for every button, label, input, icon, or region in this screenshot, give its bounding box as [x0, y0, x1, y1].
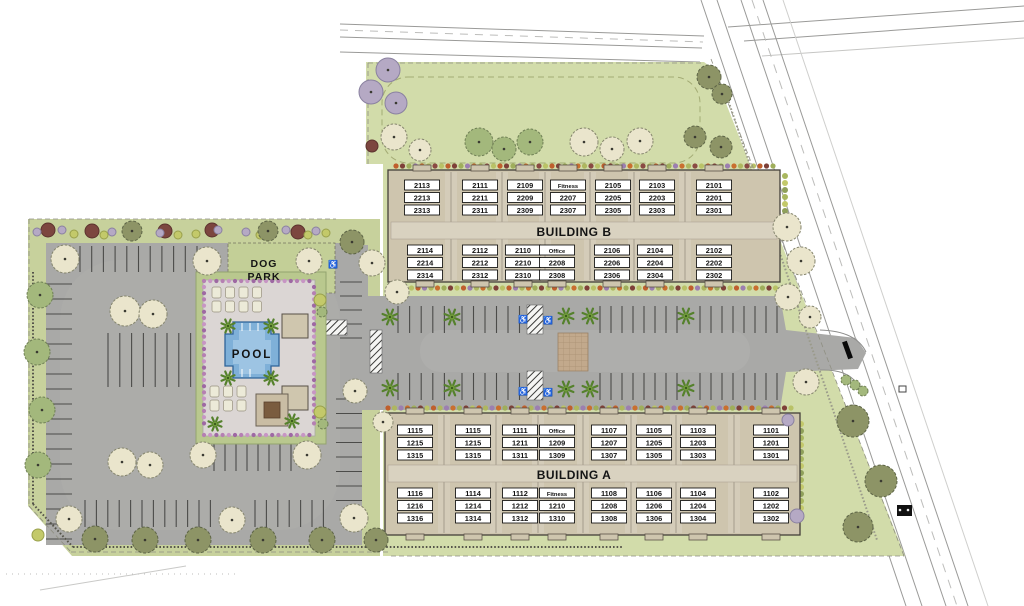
unit-number: 1310 [549, 514, 565, 523]
tree-center-dot [800, 260, 803, 263]
planting-dot [756, 405, 761, 410]
unit-number: 2210 [515, 258, 531, 267]
planting-dot [398, 405, 403, 410]
tree-center-dot [786, 226, 789, 229]
planting-dot [591, 285, 596, 290]
unit-number: 2109 [517, 181, 533, 190]
tree-center-dot [382, 421, 385, 424]
tree-center-dot [262, 539, 265, 542]
porch [705, 165, 723, 171]
planting-dot [202, 285, 206, 289]
tree-center-dot [393, 136, 396, 139]
tree-icon [33, 228, 41, 236]
porch [548, 281, 566, 287]
planting-dot [406, 163, 411, 168]
planting-dot [227, 433, 231, 437]
planting-dot [208, 279, 212, 283]
building-name-label: BUILDING B [537, 225, 612, 239]
plan-line [340, 30, 703, 42]
palm-dot [451, 316, 453, 318]
unit-label-column: 210922092309 [508, 180, 543, 215]
unit-label-column: 211222122312 [463, 245, 498, 280]
unit-number: 2208 [549, 258, 565, 267]
planting-dot [393, 163, 398, 168]
planting-dot [270, 433, 274, 437]
planting-dot [258, 433, 262, 437]
unit-number: 1304 [690, 514, 707, 523]
unit-number: 1115 [465, 426, 481, 435]
unit-number: 2302 [706, 271, 722, 280]
unit-label-column: 110512051305 [637, 425, 672, 460]
unit-label-column: 210122012301 [697, 180, 732, 215]
unit-number: 2204 [647, 258, 664, 267]
tree-center-dot [371, 262, 374, 265]
planting-dot [567, 405, 572, 410]
planting-dot [753, 285, 758, 290]
planting-dot [301, 279, 305, 283]
planting-dot [202, 421, 206, 425]
unit-label-column: 110812081308 [592, 488, 627, 523]
unit-number: 1211 [512, 438, 528, 447]
planting-dot [202, 347, 206, 351]
unit-number: 2209 [517, 193, 533, 202]
planting-dot [400, 163, 405, 168]
planting-dot [227, 279, 231, 283]
planting-dot [307, 433, 311, 437]
lounge-chair [237, 386, 246, 397]
accessible-parking-icon: ♿ [518, 386, 528, 396]
unit-number: 1210 [549, 501, 565, 510]
unit-number: 1303 [690, 451, 706, 460]
tree-icon [312, 227, 320, 235]
planting-dot [312, 359, 316, 363]
planting-dot [450, 405, 455, 410]
tree-center-dot [880, 480, 883, 483]
plan-line [40, 566, 186, 590]
planting-dot [312, 397, 316, 401]
unit-number: 1302 [763, 514, 779, 523]
accessible-parking-icon: ♿ [543, 315, 553, 325]
planting-dot [312, 310, 316, 314]
unit-number: 1306 [646, 514, 662, 523]
unit-label-column: 210422042304 [638, 245, 673, 280]
unit-number: 2307 [560, 206, 576, 215]
porch [548, 534, 566, 540]
unit-number: 1208 [601, 501, 617, 510]
unit-number: 1102 [763, 489, 779, 498]
porch [648, 165, 666, 171]
porch [464, 408, 482, 414]
unit-number: 2213 [414, 193, 430, 202]
planting-dot [289, 279, 293, 283]
planting-dot [202, 415, 206, 419]
planting-dot [202, 397, 206, 401]
unit-number: 1112 [512, 489, 528, 498]
planting-dot [312, 328, 316, 332]
planting-dot [312, 390, 316, 394]
planting-dot [461, 285, 466, 290]
planting-dot [312, 335, 316, 339]
tree-icon [32, 529, 44, 541]
unit-number: 1214 [465, 501, 482, 510]
palm-dot [589, 315, 591, 317]
unit-number: 1316 [407, 514, 423, 523]
unit-number: 1314 [465, 514, 482, 523]
unit-label-column: 110112011301 [754, 425, 789, 460]
planting-dot [202, 310, 206, 314]
unit-number: 2310 [515, 271, 531, 280]
unit-number: 2111 [472, 181, 488, 190]
accessible-parking-icon: ♿ [518, 314, 528, 324]
tree-icon [858, 386, 868, 396]
planting-dot [233, 433, 237, 437]
planting-dot [454, 285, 459, 290]
tree-center-dot [375, 539, 378, 542]
planting-dot [312, 341, 316, 345]
planting-dot [623, 285, 628, 290]
unit-number: 1315 [465, 451, 481, 460]
tree-icon [790, 509, 804, 523]
planting-dot [202, 359, 206, 363]
planting-dot [692, 163, 697, 168]
plan-line [744, 21, 1024, 41]
planting-dot [301, 433, 305, 437]
planting-dot [699, 163, 704, 168]
plan-rect [558, 333, 588, 371]
planting-dot [757, 163, 762, 168]
planting-dot [593, 405, 598, 410]
planting-dot [202, 384, 206, 388]
planting-dot [312, 285, 316, 289]
planting-dot [597, 285, 602, 290]
unit-number: Office [549, 249, 566, 255]
unit-number: 2305 [605, 206, 621, 215]
planting-dot [632, 405, 637, 410]
unit-label-column: 111512151315 [398, 425, 433, 460]
planting-dot [541, 405, 546, 410]
planting-dot [312, 353, 316, 357]
lounge-chair [239, 301, 248, 312]
tree-icon [192, 230, 200, 238]
porch [559, 165, 577, 171]
tree-center-dot [583, 141, 586, 144]
planting-dot [506, 285, 511, 290]
planting-dot [695, 285, 700, 290]
tree-icon [322, 229, 330, 237]
planting-dot [619, 405, 624, 410]
porch [514, 281, 532, 287]
unit-number: 2205 [605, 193, 621, 202]
planting-dot [497, 163, 502, 168]
planting-dot [493, 285, 498, 290]
tree-center-dot [206, 260, 209, 263]
tree-center-dot [857, 526, 860, 529]
planting-dot [747, 285, 752, 290]
planting-dot [202, 409, 206, 413]
tree-icon [242, 228, 250, 236]
planting-dot [432, 163, 437, 168]
tree-center-dot [529, 141, 532, 144]
planting-dot [312, 372, 316, 376]
planting-dot [295, 279, 299, 283]
tree-center-dot [503, 148, 506, 151]
planting-dot [458, 163, 463, 168]
planting-dot [627, 163, 632, 168]
planting-dot [588, 163, 593, 168]
unit-number: 2311 [472, 206, 488, 215]
unit-number: 2104 [647, 246, 664, 255]
planting-dot [312, 366, 316, 370]
unit-number: 1311 [512, 451, 528, 460]
lounge-chair [253, 301, 262, 312]
planting-dot [457, 405, 462, 410]
porch [762, 408, 780, 414]
tree-center-dot [306, 454, 309, 457]
tree-icon [314, 406, 326, 418]
tree-center-dot [419, 149, 422, 152]
planting-dot [202, 372, 206, 376]
planting-dot [312, 291, 316, 295]
porch [406, 534, 424, 540]
planting-dot [782, 194, 788, 200]
tree-icon [366, 140, 378, 152]
building-b: BUILDING B211322132313211122112311210922… [388, 165, 780, 287]
planting-dot [202, 304, 206, 308]
unit-number: 2101 [706, 181, 722, 190]
planting-dot [671, 405, 676, 410]
planting-dot [675, 285, 680, 290]
unit-number: 1308 [601, 514, 617, 523]
unit-number: 2301 [706, 206, 722, 215]
unit-number: 1106 [646, 489, 662, 498]
planting-dot [727, 285, 732, 290]
porch [516, 165, 534, 171]
planting-dot [202, 403, 206, 407]
tree-icon [282, 226, 290, 234]
planting-dot [580, 405, 585, 410]
unit-number: 1205 [646, 438, 662, 447]
porch [705, 281, 723, 287]
unit-label-column: 210322032303 [640, 180, 675, 215]
unit-number: 2309 [517, 206, 533, 215]
building-name-label: BUILDING A [537, 468, 612, 482]
planting-dot [202, 279, 206, 283]
unit-number: 1101 [763, 426, 779, 435]
tree-center-dot [787, 296, 790, 299]
planting-dot [626, 405, 631, 410]
planting-dot [289, 433, 293, 437]
plan-rect [264, 402, 280, 418]
planting-dot [574, 405, 579, 410]
porch [645, 408, 663, 414]
unit-number: 1104 [690, 489, 707, 498]
unit-number: 2202 [706, 258, 722, 267]
planting-dot [312, 322, 316, 326]
porch [762, 534, 780, 540]
tree-center-dot [36, 351, 39, 354]
palm-dot [685, 315, 687, 317]
planting-dot [740, 285, 745, 290]
unit-number: 2313 [414, 206, 430, 215]
planting-dot [734, 285, 739, 290]
planting-dot [630, 285, 635, 290]
planting-dot [202, 353, 206, 357]
planting-dot [899, 509, 902, 512]
unit-number: 1301 [763, 451, 779, 460]
planting-dot [639, 405, 644, 410]
planting-dot [202, 316, 206, 320]
planting-dot [736, 405, 741, 410]
porch [689, 534, 707, 540]
planting-dot [679, 163, 684, 168]
tree-icon [41, 223, 55, 237]
planting-dot [202, 322, 206, 326]
unit-number: Office [549, 429, 566, 435]
accessible-parking-icon: ♿ [543, 387, 553, 397]
unit-label-column: 110612061306 [637, 488, 672, 523]
tree-center-dot [395, 102, 398, 105]
tree-center-dot [809, 316, 812, 319]
unit-label-column: 111512151315 [456, 425, 491, 460]
planting-dot [392, 405, 397, 410]
planting-dot [571, 285, 576, 290]
tree-icon [58, 226, 66, 234]
porch [471, 165, 489, 171]
tree-center-dot [708, 76, 711, 79]
tree-center-dot [149, 464, 152, 467]
unit-number: 2306 [604, 271, 620, 280]
unit-label-column: 211022102310 [506, 245, 541, 280]
unit-number: 2114 [417, 246, 434, 255]
planting-dot [510, 163, 515, 168]
unit-number: 1204 [690, 501, 707, 510]
unit-label-column: 211422142314 [408, 245, 443, 280]
planting-dot [682, 285, 687, 290]
unit-label-column: 110312031303 [681, 425, 716, 460]
planting-dot [312, 403, 316, 407]
planting-dot [424, 405, 429, 410]
palm-dot [589, 388, 591, 390]
tree-icon [108, 228, 116, 236]
tree-center-dot [611, 148, 614, 151]
lounge-chair [224, 386, 233, 397]
unit-number: 1116 [407, 489, 423, 498]
unit-number: 2201 [706, 193, 722, 202]
tree-icon [318, 419, 328, 429]
unit-number: 2103 [649, 181, 665, 190]
tree-center-dot [37, 464, 40, 467]
unit-number: 1201 [763, 438, 779, 447]
unit-label-column: 110212021302 [754, 488, 789, 523]
porch [600, 534, 618, 540]
plan-rect [527, 305, 543, 334]
tree-center-dot [231, 519, 234, 522]
planting-dot [582, 163, 587, 168]
unit-number: 1312 [512, 514, 528, 523]
planting-dot [539, 285, 544, 290]
unit-number: 2304 [647, 271, 664, 280]
unit-number: 1309 [549, 451, 565, 460]
planting-dot [500, 285, 505, 290]
site-plan-drawing: ♿♿♿♿♿BUILDING B2113221323132111221123112… [0, 0, 1024, 606]
porch [548, 408, 566, 414]
planting-dot [536, 163, 541, 168]
tree-center-dot [721, 93, 724, 96]
planting-dot [202, 433, 206, 437]
palm-dot [685, 387, 687, 389]
planting-dot [441, 285, 446, 290]
planting-dot [444, 405, 449, 410]
tree-center-dot [39, 294, 42, 297]
unit-number: 1203 [690, 438, 706, 447]
planting-dot [532, 285, 537, 290]
planting-dot [239, 433, 243, 437]
porch [406, 408, 424, 414]
palm-dot [389, 387, 391, 389]
tree-center-dot [197, 539, 200, 542]
palm-dot [291, 420, 293, 422]
unit-number: 1202 [763, 501, 779, 510]
planting-dot [409, 285, 414, 290]
tree-center-dot [694, 136, 697, 139]
porch [645, 534, 663, 540]
unit-number: 2314 [417, 271, 434, 280]
unit-number: 1114 [465, 489, 482, 498]
planting-dot [502, 405, 507, 410]
planting-dot [725, 163, 730, 168]
unit-label-column: 210622062306 [595, 245, 630, 280]
lounge-chair [237, 400, 246, 411]
planting-dot [312, 316, 316, 320]
lounge-chair [239, 287, 248, 298]
unit-label-column: 210522052305 [596, 180, 631, 215]
planting-dot [435, 285, 440, 290]
planting-dot [239, 279, 243, 283]
unit-number: 1108 [601, 489, 617, 498]
porch [416, 281, 434, 287]
planting-dot [543, 163, 548, 168]
planting-dot [717, 405, 722, 410]
planting-dot [788, 405, 793, 410]
unit-number: 1115 [407, 426, 423, 435]
unit-number: 2212 [472, 258, 488, 267]
planting-dot [723, 405, 728, 410]
planting-dot [295, 433, 299, 437]
unit-number: 2312 [472, 271, 488, 280]
pool-label: POOL [232, 349, 273, 361]
unit-number: 1206 [646, 501, 662, 510]
unit-number: 1212 [512, 501, 528, 510]
plan-rect [282, 314, 308, 338]
planting-dot [202, 390, 206, 394]
tree-center-dot [351, 241, 354, 244]
planting-dot [730, 405, 735, 410]
planting-dot [587, 405, 592, 410]
unit-number: 2207 [560, 193, 576, 202]
lounge-chair [212, 301, 221, 312]
tree-icon [70, 230, 78, 238]
planting-dot [252, 433, 256, 437]
tree-icon [156, 229, 164, 237]
planting-dot [678, 405, 683, 410]
tree-center-dot [124, 310, 127, 313]
porch [464, 534, 482, 540]
porch [689, 408, 707, 414]
unit-label-column: 210222022302 [697, 245, 732, 280]
tree-icon [304, 231, 312, 239]
tree-center-dot [202, 454, 205, 457]
porch [603, 281, 621, 287]
